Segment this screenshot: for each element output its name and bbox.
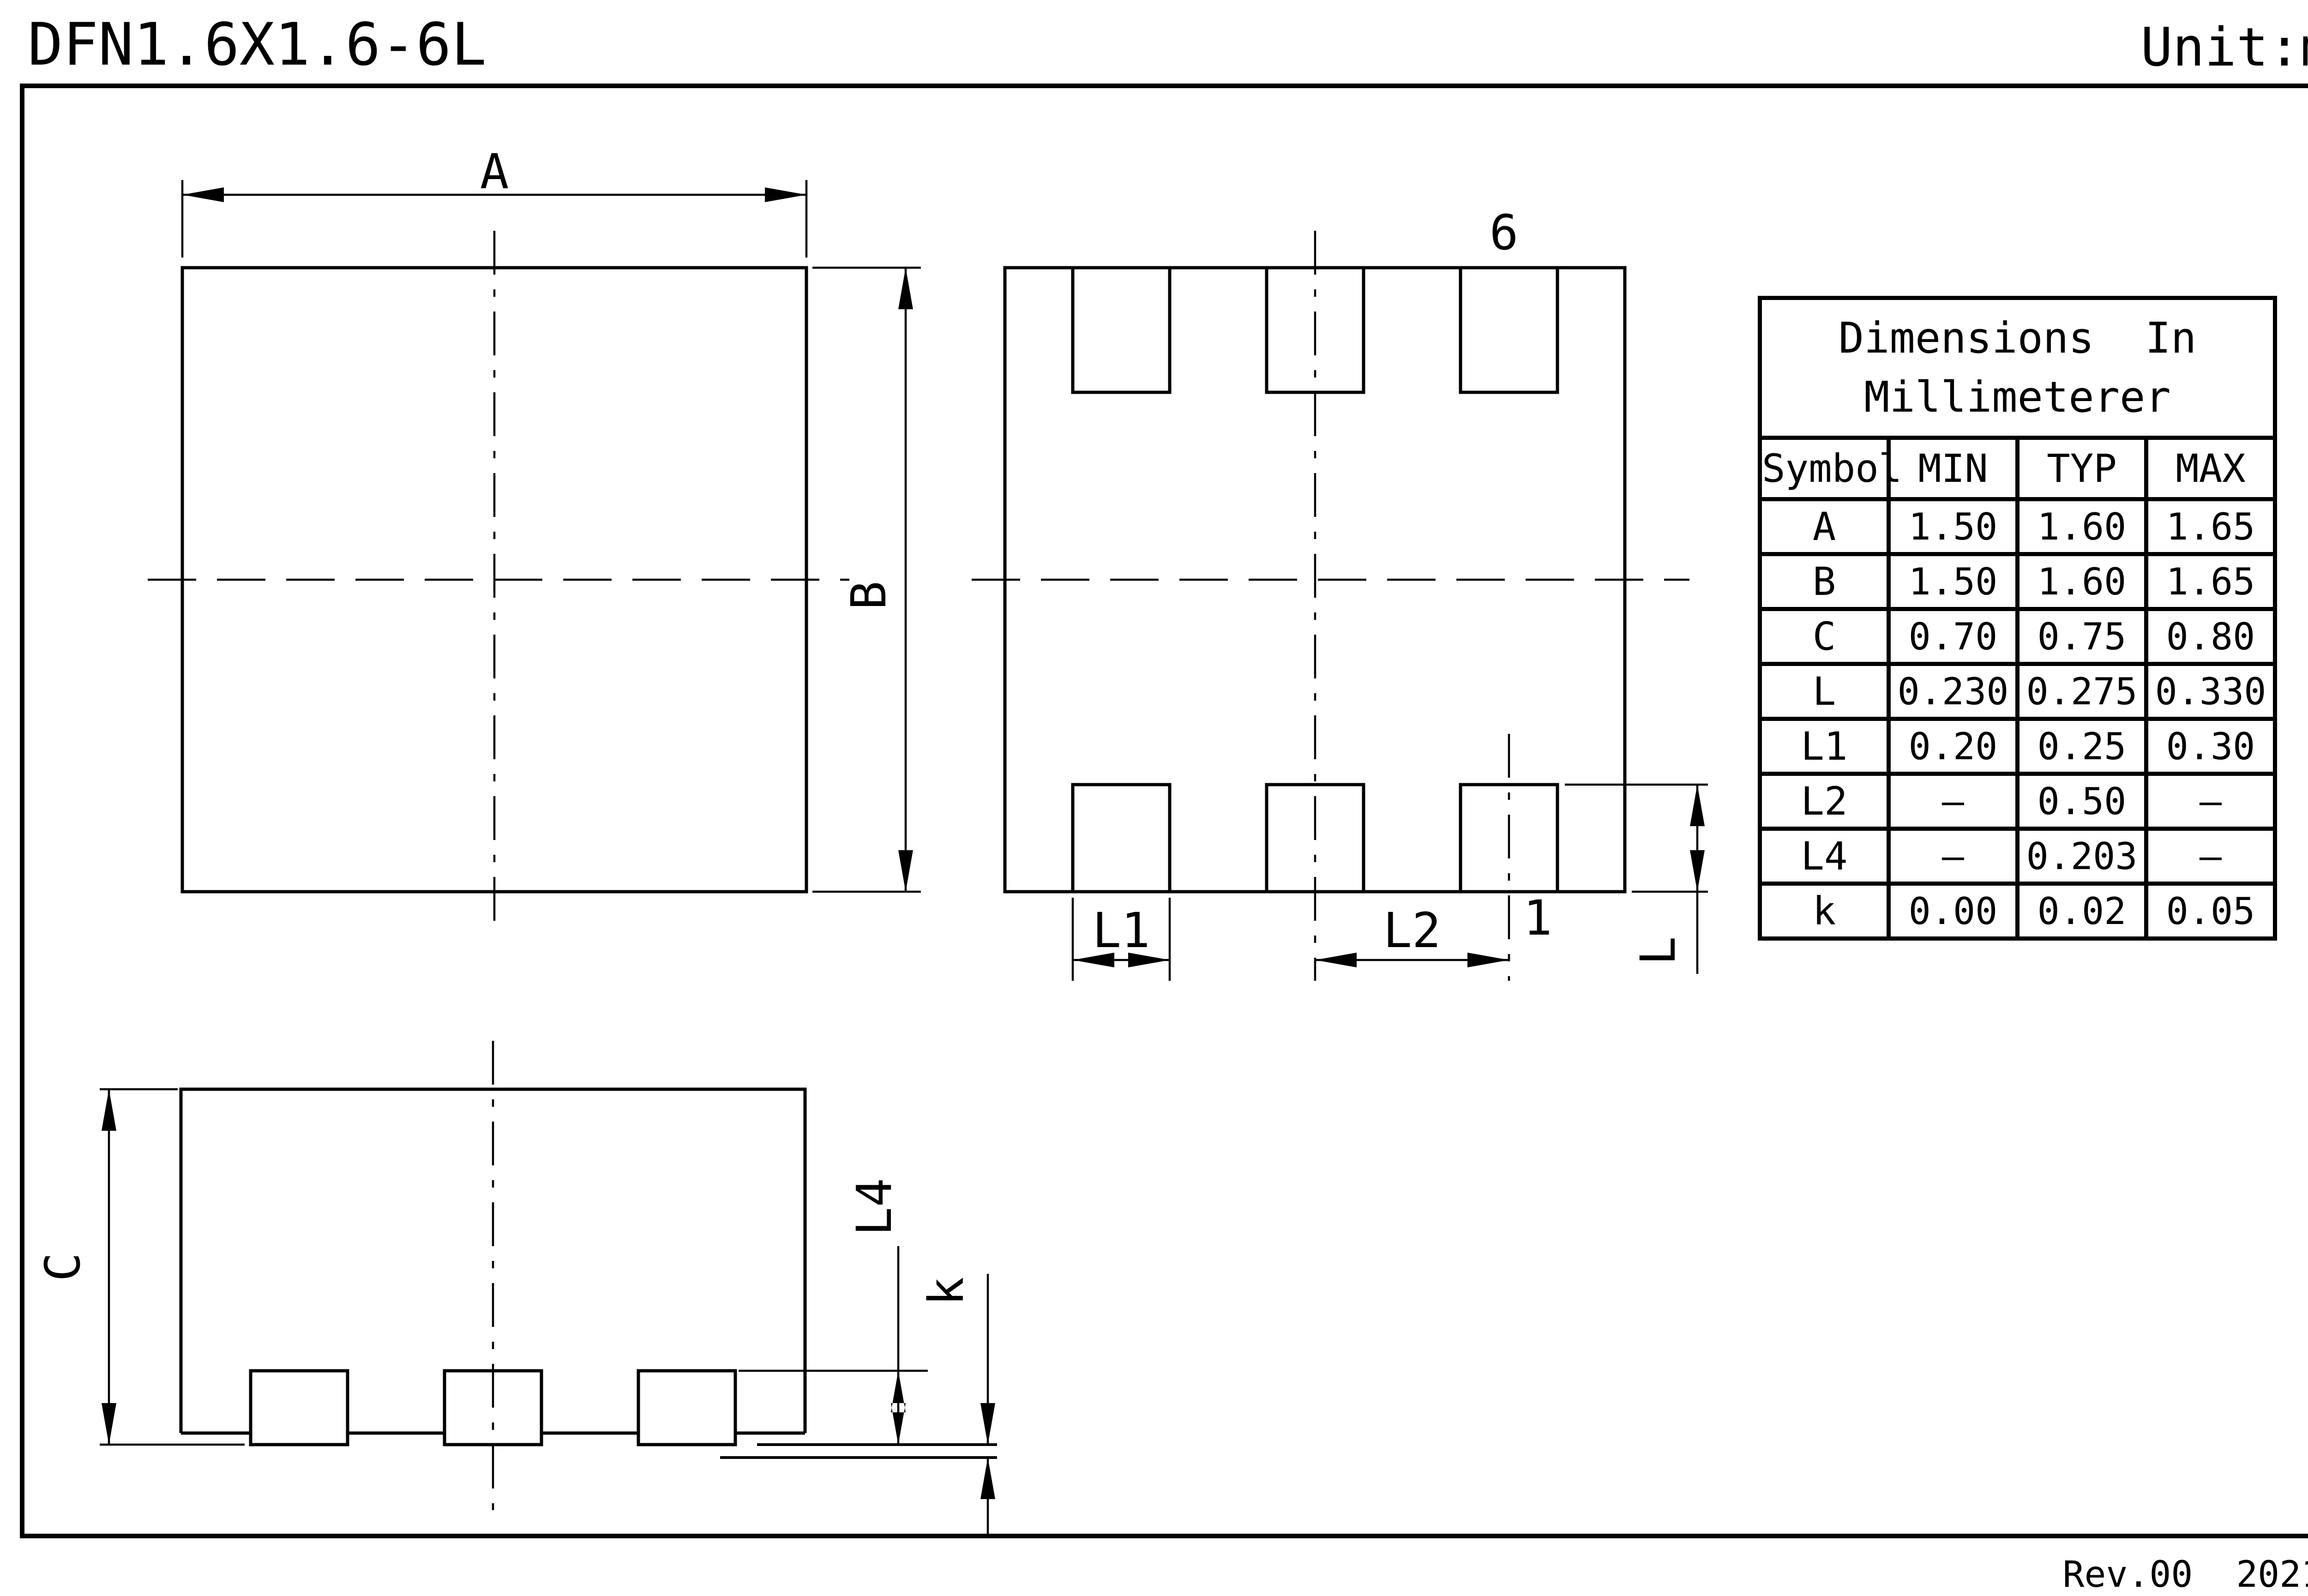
table-title-line1: Dimensions In [1762, 318, 2273, 359]
side-view: C L4 k [35, 1041, 997, 1537]
col-header-symbol: Symbol [1760, 438, 1889, 499]
pin6-label: 6 [1490, 204, 1519, 261]
dim-label-l4: L4 [846, 1178, 902, 1236]
table-row: L2 – 0.50 – [1760, 774, 2275, 829]
cell-max: – [2146, 829, 2275, 884]
cell-min: 0.20 [1889, 719, 2018, 774]
cell-min: 1.50 [1889, 499, 2018, 554]
bottom-view-centerlines-dashdot [1315, 231, 1509, 981]
table-row: L1 0.20 0.25 0.30 [1760, 719, 2275, 774]
revision-label: Rev.00 202107 [2063, 1554, 2308, 1596]
cell-typ: 0.50 [2018, 774, 2146, 829]
dim-label-l: L [1630, 936, 1686, 966]
cell-min: 0.70 [1889, 609, 2018, 664]
table-row: B 1.50 1.60 1.65 [1760, 554, 2275, 609]
top-view-dimension-lines [182, 180, 921, 892]
cell-symbol: B [1760, 554, 1889, 609]
side-view-dimension-lines [100, 1089, 988, 1537]
cell-max: 0.30 [2146, 719, 2275, 774]
col-header-min: MIN [1889, 438, 2018, 499]
cell-symbol: C [1760, 609, 1889, 664]
table-header-row: Symbol MIN TYP MAX [1760, 438, 2275, 499]
cell-symbol: L [1760, 664, 1889, 719]
cell-typ: 0.02 [2018, 884, 2146, 939]
cell-max: 1.65 [2146, 554, 2275, 609]
col-header-max: MAX [2146, 438, 2275, 499]
cell-min: 0.230 [1889, 664, 2018, 719]
dim-label-c: C [35, 1253, 91, 1282]
cell-typ: 0.25 [2018, 719, 2146, 774]
dim-label-l2: L2 [1383, 902, 1441, 959]
pin1-label: 1 [1523, 890, 1552, 946]
cell-min: – [1889, 774, 2018, 829]
table-title-row: Dimensions In Millimeterer [1760, 298, 2275, 438]
dim-label-a: A [480, 144, 509, 200]
cell-max: 0.330 [2146, 664, 2275, 719]
cell-symbol: L2 [1760, 774, 1889, 829]
cell-min: – [1889, 829, 2018, 884]
cell-symbol: L1 [1760, 719, 1889, 774]
cell-symbol: k [1760, 884, 1889, 939]
table-row: L4 – 0.203 – [1760, 829, 2275, 884]
cell-min: 1.50 [1889, 554, 2018, 609]
cell-typ: 0.75 [2018, 609, 2146, 664]
drawing-sheet: A B 6 1 L1 L2 L C L4 k [0, 0, 2308, 1596]
table-title-cell: Dimensions In Millimeterer [1760, 298, 2275, 438]
cell-max: – [2146, 774, 2275, 829]
top-view-arrowheads [182, 187, 913, 892]
top-view: A B [148, 144, 921, 928]
cell-symbol: A [1760, 499, 1889, 554]
cell-max: 0.05 [2146, 884, 2275, 939]
cell-max: 0.80 [2146, 609, 2275, 664]
cell-min: 0.00 [1889, 884, 2018, 939]
cell-symbol: L4 [1760, 829, 1889, 884]
table-row: L 0.230 0.275 0.330 [1760, 664, 2275, 719]
bottom-view: 6 1 L1 L2 L [972, 204, 1708, 981]
side-view-seating-plane-lines [720, 1445, 997, 1458]
table-row: C 0.70 0.75 0.80 [1760, 609, 2275, 664]
cell-max: 1.65 [2146, 499, 2275, 554]
dimensions-table: Dimensions In Millimeterer Symbol MIN TY… [1758, 296, 2277, 941]
dim-label-l1: L1 [1092, 902, 1150, 959]
unit-label: Unit:mm [2140, 17, 2308, 78]
cell-typ: 1.60 [2018, 499, 2146, 554]
cell-typ: 0.275 [2018, 664, 2146, 719]
side-view-arrowheads [102, 1089, 995, 1499]
page-title: DFN1.6X1.6-6L [28, 10, 487, 78]
dim-label-b: B [841, 581, 897, 610]
dim-label-k: k [918, 1277, 974, 1306]
col-header-typ: TYP [2018, 438, 2146, 499]
table-row: k 0.00 0.02 0.05 [1760, 884, 2275, 939]
cell-typ: 0.203 [2018, 829, 2146, 884]
table-title-line2: Millimeterer [1762, 377, 2273, 418]
cell-typ: 1.60 [2018, 554, 2146, 609]
table-row: A 1.50 1.60 1.65 [1760, 499, 2275, 554]
